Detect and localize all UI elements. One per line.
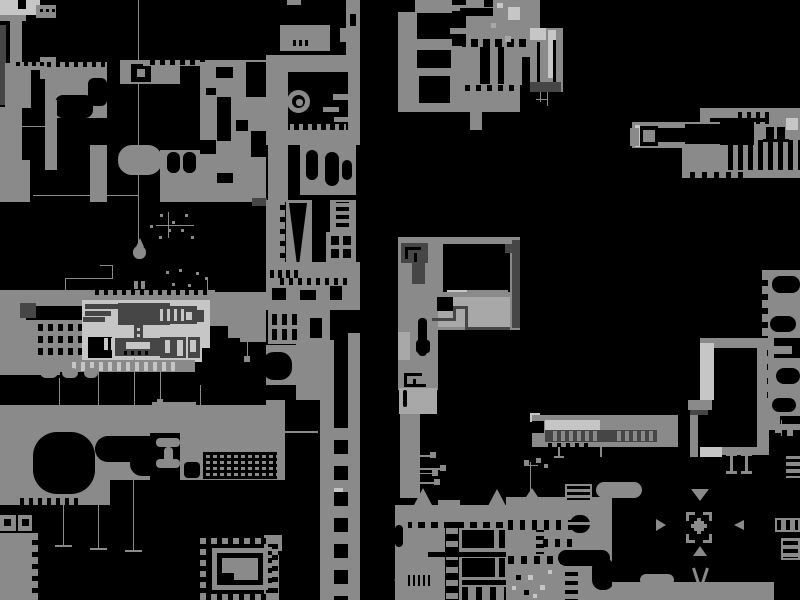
map-shape-vteeth (293, 40, 309, 46)
map-shape-rect (524, 465, 538, 466)
map-shape-rect (287, 0, 301, 5)
map-shape-rect (566, 522, 594, 525)
map-shape-rect (88, 337, 112, 358)
map-shape-rect (757, 345, 767, 455)
map-shape-rect (5, 70, 31, 108)
map-shape-rect (741, 471, 752, 474)
map-shape-rect (465, 327, 510, 330)
map-shape-vteeth (95, 290, 207, 295)
map-shape-rect (160, 214, 163, 217)
map-shape-rect (137, 328, 140, 331)
map-shape-rect (432, 470, 438, 476)
map-shape-rect (212, 548, 217, 590)
map-shape-rect (137, 69, 145, 77)
map-shape-rect (516, 575, 521, 580)
map-shape-rect (470, 112, 482, 130)
map-shape-rect (156, 459, 180, 468)
map-shape-rect (268, 145, 288, 202)
map-shape-rect (85, 304, 121, 309)
map-shape-rect (126, 342, 150, 349)
map-shape-rect (505, 36, 511, 42)
map-shape-rect (18, 0, 26, 9)
map-shape-rect (715, 447, 765, 455)
map-shape-rect (179, 269, 182, 272)
map-shape-rect (196, 272, 199, 275)
map-shape-rect (166, 271, 169, 274)
map-shape-rect (306, 150, 318, 180)
map-shape-rect (697, 518, 701, 534)
map-shape-rect (524, 590, 529, 595)
map-shape-hteeth (567, 486, 590, 500)
map-shape-rect (408, 473, 434, 474)
map-shape-rect (505, 244, 514, 253)
map-shape-rect (266, 130, 360, 145)
map-shape-rect (285, 431, 318, 433)
map-shape-vteeth (124, 351, 152, 355)
map-shape-rect (188, 284, 191, 287)
map-shape-rect (596, 482, 642, 498)
map-shape-rect (45, 100, 57, 170)
map-shape-rect (133, 480, 134, 550)
map-shape-rect (709, 512, 712, 521)
map-shape-rect (88, 78, 107, 106)
map-shape-vteeth (160, 309, 188, 321)
map-shape-speck (203, 452, 277, 479)
map-shape-rect (33, 432, 95, 494)
map-shape-rect (484, 0, 493, 7)
map-shape-rect (246, 62, 266, 97)
map-shape-hteeth (786, 459, 800, 476)
map-shape-rect (763, 139, 789, 142)
map-shape-rect (640, 574, 674, 586)
map-shape-rect (343, 249, 351, 258)
map-shape-tri-up (136, 238, 144, 247)
map-shape-rect (172, 283, 175, 286)
map-shape-rect (447, 290, 467, 292)
map-shape-rect (776, 368, 800, 384)
map-shape-rect (184, 462, 200, 478)
map-shape-rect (118, 145, 162, 175)
map-shape-rect (330, 286, 342, 300)
map-shape-rect (331, 236, 339, 245)
map-shape-rect (20, 303, 36, 318)
map-shape-rect (398, 0, 415, 12)
map-shape-rect (251, 131, 266, 157)
map-shape-rect (545, 420, 600, 430)
map-shape-vteeth (738, 112, 772, 124)
map-shape-rect (686, 540, 695, 543)
map-shape-rect (412, 262, 425, 284)
map-shape-rect (772, 424, 792, 425)
map-shape-rect (430, 452, 436, 458)
map-shape-rect (191, 236, 194, 239)
map-shape-rect (340, 28, 347, 42)
map-shape-rect (592, 558, 614, 590)
map-shape-vteeth (206, 594, 272, 600)
map-shape-rect (167, 152, 180, 173)
map-shape-tri-right (656, 519, 666, 531)
map-shape-vteeth (465, 85, 520, 91)
map-shape-rect (125, 550, 142, 552)
map-shape-vteeth (728, 140, 800, 170)
map-shape-rect (84, 368, 98, 378)
map-shape-rect (216, 67, 233, 78)
map-shape-vteeth (280, 278, 350, 285)
map-shape-rect (346, 0, 360, 60)
map-shape-rect (98, 505, 99, 548)
map-shape-rect (709, 534, 712, 543)
map-shape-rect (524, 460, 529, 465)
map-shape-hteeth (272, 544, 278, 594)
map-shape-rect (40, 9, 43, 12)
map-shape-rect (263, 548, 268, 590)
map-shape-rect (775, 427, 781, 433)
map-shape-rect (437, 297, 453, 311)
map-shape-rect (212, 548, 268, 553)
map-shape-hteeth (32, 540, 38, 595)
map-shape-rect (65, 278, 113, 279)
map-shape-rect (770, 346, 792, 354)
map-shape-rect (600, 447, 602, 457)
map-shape-rect (491, 23, 496, 28)
map-shape-rect (460, 8, 493, 16)
map-shape-vteeth (466, 39, 540, 47)
map-shape-rect (530, 82, 561, 92)
map-shape-rect (781, 420, 782, 436)
map-shape-rect (0, 160, 30, 202)
map-shape-rect (536, 99, 548, 100)
map-shape-rect (700, 447, 722, 457)
map-shape-rect (83, 317, 105, 322)
map-shape-rect (90, 145, 107, 202)
map-shape-rect (530, 462, 531, 492)
map-shape-rect (540, 585, 545, 590)
map-shape-rect (33, 195, 139, 196)
map-shape-rect (217, 97, 231, 141)
map-shape-rect (244, 356, 250, 362)
map-shape-rect (434, 479, 440, 485)
map-shape-rect (159, 236, 162, 239)
map-shape-rect (700, 343, 714, 400)
map-shape-rect (786, 118, 798, 130)
map-shape-rect (181, 229, 184, 232)
map-shape-rect (266, 70, 288, 132)
map-shape-rect (528, 575, 533, 580)
map-shape-rect (320, 340, 334, 600)
map-shape-vteeth (408, 575, 432, 586)
map-shape-rect (398, 332, 410, 360)
map-shape-rect (186, 312, 192, 320)
map-shape-rect (236, 120, 248, 131)
map-shape-rect (331, 249, 339, 258)
map-shape-rect (532, 421, 544, 433)
map-shape-vteeth (272, 314, 302, 325)
map-shape-rect (536, 458, 541, 463)
map-shape-rect (296, 99, 303, 106)
map-shape-rect (104, 338, 108, 350)
map-shape-rect (138, 84, 139, 247)
map-shape-rect (508, 7, 520, 20)
map-shape-rect (10, 21, 22, 63)
map-shape-rect (440, 465, 446, 471)
map-shape-rect (540, 92, 541, 102)
map-shape-rect (133, 246, 146, 259)
map-shape-rect (420, 468, 442, 470)
map-shape-rect (280, 25, 330, 51)
map-shape-rect (150, 225, 153, 228)
map-shape-vteeth (270, 270, 302, 278)
map-shape-rect (726, 471, 737, 474)
map-shape-rect (138, 0, 139, 62)
map-shape-rect (272, 288, 286, 300)
map-shape-rect (156, 225, 194, 226)
map-shape-rect (4, 519, 11, 526)
map-shape-rect (112, 265, 113, 279)
map-shape-rect (395, 525, 403, 547)
map-shape-rect (450, 28, 468, 34)
map-shape-tri-down (691, 489, 709, 501)
map-shape-rect (548, 570, 552, 574)
map-shape-rect (658, 128, 688, 142)
map-shape-rect (165, 340, 170, 353)
map-shape-rect (530, 28, 546, 40)
map-shape-hteeth (334, 428, 348, 600)
map-shape-vteeth (38, 348, 82, 355)
map-shape-rect (206, 88, 216, 95)
map-shape-rect (334, 117, 352, 122)
map-shape-rect (416, 340, 430, 353)
map-shape-rect (685, 124, 725, 144)
map-shape-rect (22, 519, 29, 526)
map-shape-rect (419, 76, 450, 103)
map-shape-rect (40, 366, 58, 378)
map-shape-rect (247, 330, 248, 358)
map-shape-rect (350, 14, 356, 26)
map-shape-rect (404, 384, 426, 387)
map-shape-vteeth (20, 498, 78, 505)
map-shape-rect (772, 276, 800, 293)
map-shape-rect (90, 548, 107, 550)
map-shape-rect (498, 47, 504, 84)
map-shape-rect (612, 582, 774, 600)
map-shape-vteeth (272, 329, 302, 340)
map-shape-rect (156, 438, 180, 447)
map-shape-rect (134, 281, 138, 289)
map-shape-rect (497, 3, 503, 8)
map-shape-rect (554, 456, 564, 458)
map-shape-rect (348, 72, 360, 135)
map-shape-rect (202, 348, 212, 364)
map-shape-rect (690, 415, 698, 457)
map-shape-vteeth (508, 520, 572, 530)
map-shape-rect (443, 244, 510, 292)
map-shape-rect (172, 221, 175, 224)
map-shape-rect (400, 414, 420, 498)
map-shape-rect (200, 140, 216, 154)
map-shape-tri-up (488, 489, 506, 506)
map-shape-rect (533, 594, 537, 598)
map-shape-rect (63, 505, 64, 545)
map-shape-tri-left (734, 520, 744, 530)
map-shape-vteeth (16, 62, 44, 66)
map-shape-rect (494, 530, 499, 548)
map-shape-vteeth (553, 431, 599, 441)
map-shape-vteeth (548, 443, 588, 448)
map-shape-vteeth (777, 520, 798, 530)
map-shape-hteeth (565, 572, 578, 600)
map-shape-rect (348, 333, 360, 600)
map-shape-vteeth (47, 62, 105, 67)
map-shape-rect (342, 160, 352, 180)
map-shape-rect (323, 107, 339, 112)
map-shape-rect (630, 128, 639, 146)
map-shape-rect (185, 214, 188, 217)
map-shape-tri-up (693, 546, 707, 556)
map-shape-rect (0, 163, 20, 164)
map-shape-rect (62, 368, 78, 378)
map-shape-rect (217, 173, 233, 183)
map-shape-vteeth (206, 538, 272, 544)
map-shape-rect (643, 130, 655, 142)
map-shape-rect (403, 390, 407, 407)
game-map-viewport (0, 0, 800, 600)
map-shape-rect (252, 198, 267, 206)
map-shape-rect (770, 316, 796, 332)
map-shape-rect (780, 416, 800, 424)
map-shape-rect (787, 430, 793, 436)
map-shape-rect (296, 344, 322, 400)
map-shape-rect (0, 405, 266, 433)
map-shape-rect (262, 352, 292, 380)
map-shape-rect (85, 311, 111, 316)
map-shape-rect (160, 365, 161, 401)
map-shape-rect (190, 310, 204, 322)
map-shape-vteeth (617, 431, 657, 441)
map-shape-rect (325, 152, 339, 186)
map-shape-rect (183, 152, 196, 173)
map-shape-rect (212, 585, 268, 590)
map-shape-hteeth (783, 541, 798, 558)
map-shape-tri-up (414, 488, 432, 505)
map-shape-rect (334, 488, 343, 492)
map-shape-hteeth (336, 203, 349, 230)
map-shape-rect (417, 13, 453, 39)
map-shape-rect (55, 545, 72, 547)
map-shape-rect (222, 573, 234, 580)
map-shape-rect (300, 290, 316, 300)
map-shape-rect (745, 456, 748, 471)
map-shape-rect (730, 456, 733, 471)
map-shape-rect (688, 400, 712, 410)
map-shape-rect (190, 340, 196, 352)
map-shape-hteeth (200, 544, 206, 594)
map-shape-rect (52, 9, 55, 12)
map-shape-rect (310, 318, 322, 338)
map-shape-rect (152, 402, 196, 410)
map-shape-hteeth (446, 528, 458, 600)
map-shape-rect (333, 94, 351, 100)
map-shape-rect (0, 126, 47, 127)
map-shape-rect (343, 236, 351, 245)
map-shape-rect (240, 292, 266, 342)
map-shape-vteeth (543, 539, 573, 547)
map-shape-rect (46, 9, 49, 12)
map-shape-vteeth (38, 324, 82, 331)
map-shape-hteeth (280, 205, 285, 260)
map-shape-rect (512, 586, 516, 590)
map-shape-vteeth (690, 172, 750, 178)
map-shape-rect (544, 464, 548, 468)
map-shape-rect (495, 558, 499, 577)
map-shape-rect (141, 281, 145, 289)
map-shape-rect (417, 50, 451, 68)
map-shape-rect (137, 334, 140, 337)
map-shape-rect (512, 240, 520, 328)
map-shape-rect (553, 40, 556, 82)
map-shape-rect (405, 247, 408, 259)
map-shape-rect (177, 340, 183, 356)
map-shape-vteeth (38, 336, 82, 343)
map-shape-rect (438, 500, 460, 506)
map-shape-rect (698, 588, 718, 600)
map-shape-rect (537, 42, 540, 82)
map-shape-rect (772, 398, 796, 412)
map-shape-rect (480, 47, 490, 84)
map-shape-vteeth (290, 124, 346, 131)
map-shape-rect (686, 512, 689, 521)
